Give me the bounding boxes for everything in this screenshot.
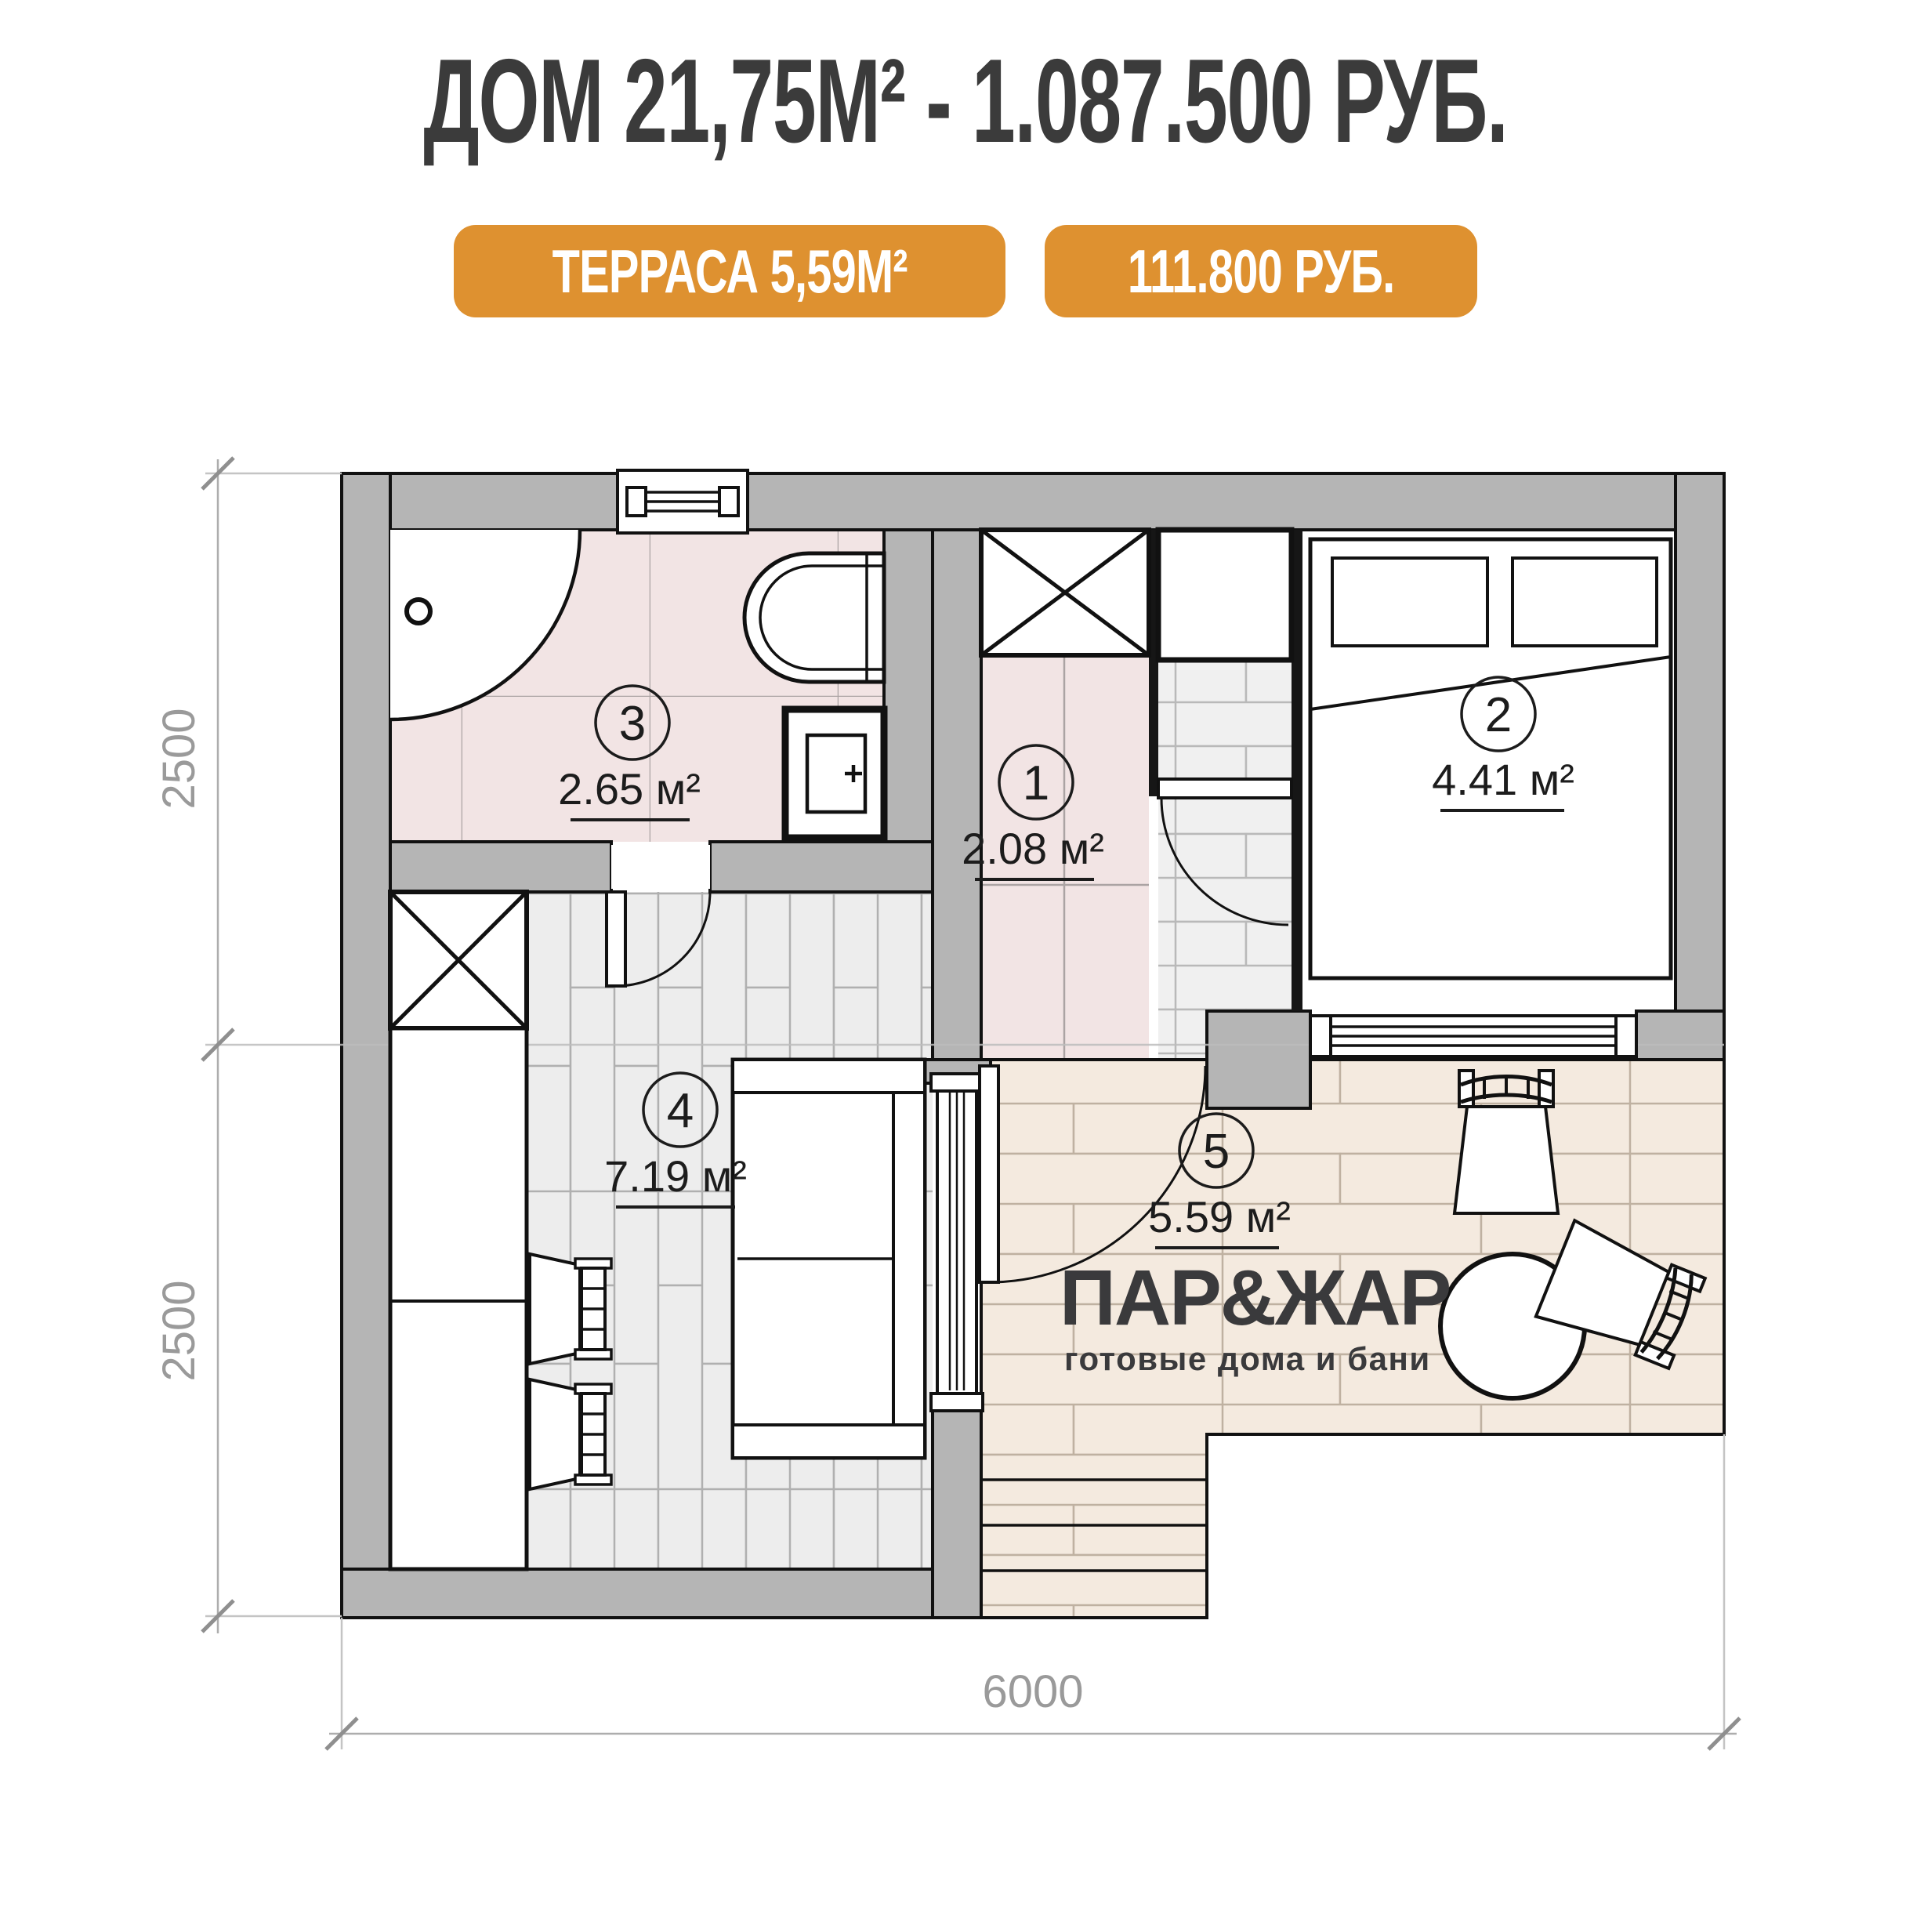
- room-area: 5.59 м²: [1148, 1192, 1291, 1241]
- kitchen-counter: [390, 1028, 527, 1569]
- shower-drain-icon: [407, 600, 430, 623]
- dim-left-bottom: 2500: [154, 1280, 205, 1381]
- room-number: 2: [1485, 688, 1512, 742]
- room-area: 2.08 м²: [962, 824, 1104, 873]
- room-area: 7.19 м²: [604, 1151, 747, 1201]
- top-window: [618, 470, 748, 533]
- wall-pier-terrace: [1207, 1011, 1310, 1108]
- bathtub: [745, 553, 884, 682]
- room-number: 1: [1023, 756, 1049, 810]
- wall-hall-left: [933, 530, 981, 1060]
- wall-bottom: [342, 1569, 972, 1618]
- wall-pier-slider-bottom: [933, 1400, 981, 1618]
- room-area: 2.65 м²: [558, 764, 701, 814]
- wall-bath-right: [884, 530, 933, 842]
- brand-logo-text: ПАР&ЖАР: [1060, 1254, 1450, 1342]
- water-heater: [785, 709, 884, 838]
- dim-bottom: 6000: [982, 1666, 1083, 1717]
- sliding-glass-door: [931, 1074, 983, 1411]
- brand-logo-tagline: готовые дома и бани: [1064, 1340, 1431, 1377]
- kitchen-closet: [390, 892, 527, 1028]
- room-number: 5: [1203, 1125, 1230, 1179]
- stool-2: [530, 1379, 611, 1489]
- bedroom-window: [1310, 1016, 1636, 1057]
- wall-top: [342, 473, 1724, 530]
- cabinet-box: [1158, 530, 1292, 660]
- wall-bath-bottom-left: [390, 842, 611, 892]
- brand-logo: ПАР&ЖАР готовые дома и бани: [1060, 1254, 1450, 1377]
- wall-right: [1676, 473, 1724, 1060]
- wall-bath-bottom-right: [710, 842, 933, 892]
- terrace-chair-1: [1455, 1071, 1558, 1213]
- room-area: 4.41 м²: [1432, 755, 1574, 804]
- hall-closet: [981, 530, 1149, 655]
- dim-left-top: 2500: [154, 708, 205, 809]
- sofa: [733, 1060, 925, 1458]
- stool-1: [530, 1254, 611, 1364]
- floor-plan: 3 2.65 м² 1 2.08 м² 2 4.41 м² 4 7.19 м² …: [0, 0, 1931, 1932]
- room-number: 3: [619, 697, 646, 751]
- wall-pier-bedroom-right: [1636, 1011, 1724, 1060]
- room-number: 4: [667, 1084, 694, 1138]
